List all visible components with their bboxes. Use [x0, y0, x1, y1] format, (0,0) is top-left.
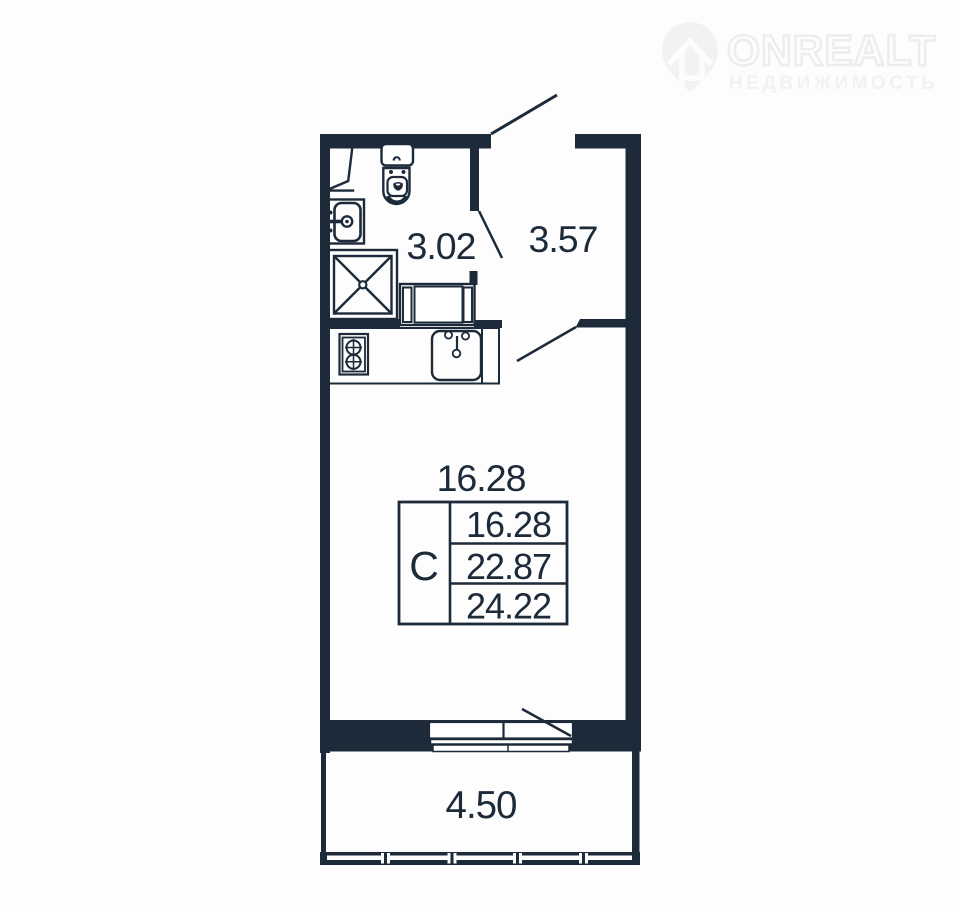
svg-text:22.87: 22.87: [466, 546, 551, 587]
svg-text:С: С: [409, 543, 439, 589]
svg-text:3.57: 3.57: [529, 218, 598, 260]
svg-text:24.22: 24.22: [466, 586, 551, 627]
svg-text:16.28: 16.28: [437, 457, 526, 499]
svg-text:3.02: 3.02: [407, 225, 476, 267]
svg-text:ONREALT: ONREALT: [727, 28, 936, 75]
svg-text:16.28: 16.28: [466, 504, 551, 545]
svg-text:НЕДВИЖИМОСТЬ: НЕДВИЖИМОСТЬ: [729, 73, 938, 94]
svg-text:4.50: 4.50: [446, 784, 517, 827]
